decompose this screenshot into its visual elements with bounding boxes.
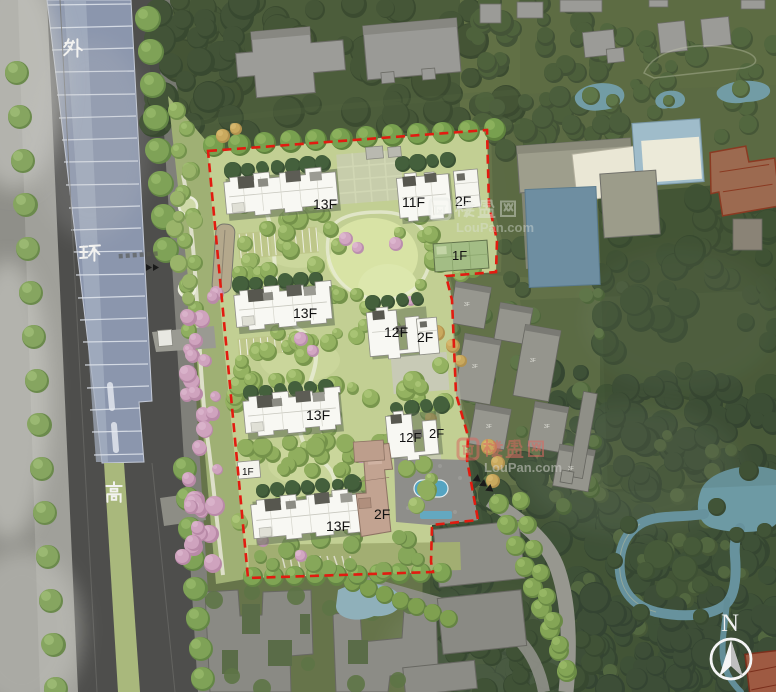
svg-text:3F: 3F <box>464 302 470 308</box>
svg-text:13F: 13F <box>306 407 330 423</box>
svg-text:LouPan.com: LouPan.com <box>484 460 562 475</box>
svg-text:3F: 3F <box>544 424 550 430</box>
svg-text:12F: 12F <box>399 430 421 445</box>
svg-text:N: N <box>721 610 739 637</box>
svg-text:2F: 2F <box>374 506 390 522</box>
svg-text:2F: 2F <box>429 426 444 441</box>
svg-text:3F: 3F <box>486 424 492 430</box>
svg-text:1F: 1F <box>452 248 467 263</box>
svg-text:13F: 13F <box>293 305 317 321</box>
svg-text:1F: 1F <box>242 467 254 478</box>
svg-text:13F: 13F <box>326 518 350 534</box>
svg-text:3F: 3F <box>530 358 536 364</box>
svg-text:LouPan.com: LouPan.com <box>456 220 534 235</box>
svg-text:11F: 11F <box>402 194 425 210</box>
svg-text:2F: 2F <box>417 329 433 345</box>
svg-text:12F: 12F <box>384 324 408 340</box>
svg-text:13F: 13F <box>313 196 337 212</box>
svg-text:3F: 3F <box>472 364 478 370</box>
